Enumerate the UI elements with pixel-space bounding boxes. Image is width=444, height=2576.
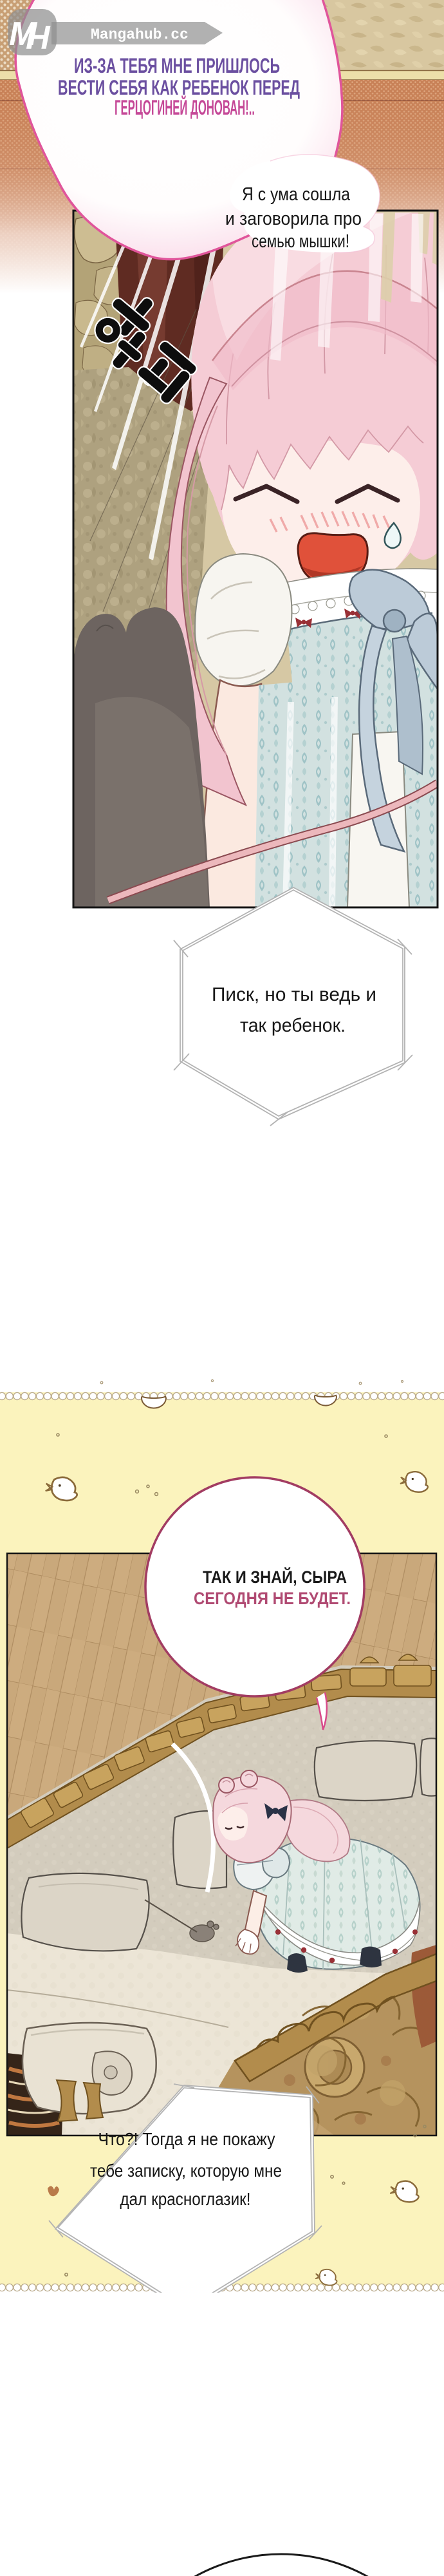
svg-text:Писк, но ты ведь и: Писк, но ты ведь и <box>212 984 376 1005</box>
svg-text:Что?! Тогда я не покажу: Что?! Тогда я не покажу <box>98 2129 275 2149</box>
svg-text:семью мышки!: семью мышки! <box>252 231 349 252</box>
svg-text:так ребенок.: так ребенок. <box>240 1015 346 1036</box>
svg-text:H: H <box>26 19 51 57</box>
svg-text:СЕГОДНЯ НЕ БУДЕТ.: СЕГОДНЯ НЕ БУДЕТ. <box>194 1589 351 1608</box>
svg-text:ИЗ-ЗА ТЕБЯ МНЕ ПРИШЛОСЬ: ИЗ-ЗА ТЕБЯ МНЕ ПРИШЛОСЬ <box>74 54 280 77</box>
svg-text:дал красноглазик!: дал красноглазик! <box>120 2189 251 2209</box>
svg-text:ГЕРЦОГИНЕЙ ДОНОВАН!..: ГЕРЦОГИНЕЙ ДОНОВАН!.. <box>115 96 255 119</box>
svg-text:Я с ума сошла: Я с ума сошла <box>242 184 351 205</box>
svg-text:тебе записку, которую мне: тебе записку, которую мне <box>90 2161 282 2181</box>
svg-text:Mangahub.cc: Mangahub.cc <box>91 26 189 43</box>
svg-text:ТАК И ЗНАЙ, СЫРА: ТАК И ЗНАЙ, СЫРА <box>203 1567 347 1587</box>
svg-text:и заговорила про: и заговорила про <box>225 209 362 229</box>
